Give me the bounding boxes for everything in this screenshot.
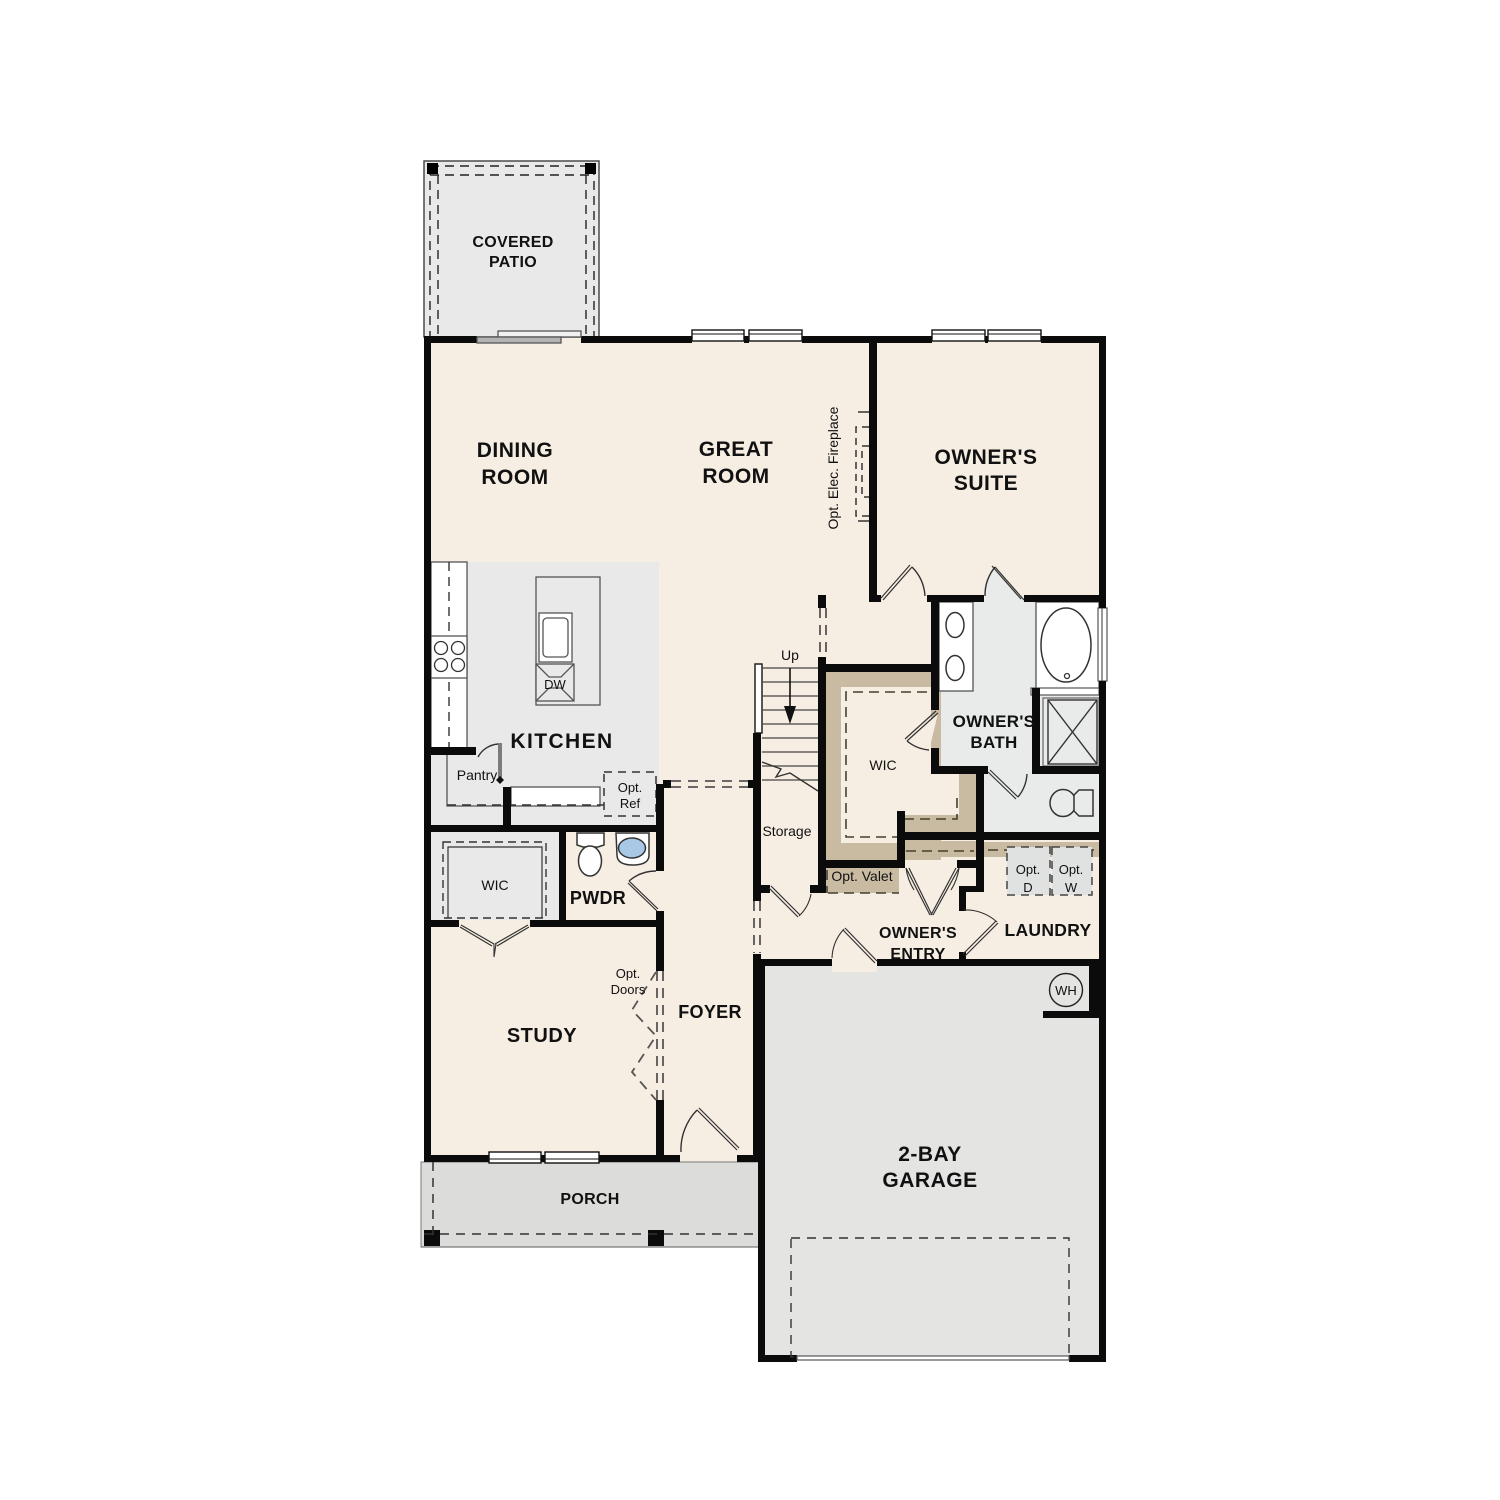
svg-text:ROOM: ROOM [481,466,548,489]
svg-text:PWDR: PWDR [570,888,626,908]
svg-text:LAUNDRY: LAUNDRY [1004,920,1091,940]
svg-text:D: D [1023,880,1032,895]
svg-text:COVERED: COVERED [472,234,553,251]
svg-text:Opt.: Opt. [616,966,641,981]
svg-text:SUITE: SUITE [954,472,1018,495]
svg-text:GARAGE: GARAGE [882,1169,977,1192]
svg-text:Storage: Storage [762,823,811,839]
svg-text:PORCH: PORCH [560,1191,619,1208]
svg-text:WIC: WIC [481,877,508,893]
svg-text:WH: WH [1055,983,1077,998]
svg-text:PATIO: PATIO [489,254,537,271]
svg-text:DINING: DINING [477,439,554,462]
svg-text:WIC: WIC [869,757,896,773]
svg-text:OWNER'S: OWNER'S [935,446,1038,469]
svg-text:ENTRY: ENTRY [890,946,945,963]
svg-text:Ref: Ref [620,796,641,811]
svg-text:BATH: BATH [970,733,1017,752]
svg-text:2-BAY: 2-BAY [898,1143,962,1166]
svg-text:Opt.: Opt. [618,780,643,795]
svg-text:Pantry: Pantry [457,767,497,783]
svg-text:KITCHEN: KITCHEN [510,730,613,753]
svg-text:Opt. Valet: Opt. Valet [831,868,892,884]
svg-text:DW: DW [544,677,566,692]
svg-text:Doors: Doors [611,982,646,997]
svg-text:W: W [1065,880,1078,895]
svg-text:STUDY: STUDY [507,1025,577,1047]
svg-text:FOYER: FOYER [678,1002,742,1022]
svg-text:Opt.: Opt. [1016,862,1041,877]
svg-text:GREAT: GREAT [699,438,773,461]
svg-text:OWNER'S: OWNER'S [953,712,1036,731]
svg-text:ROOM: ROOM [702,465,769,488]
svg-text:Up: Up [781,647,799,663]
svg-text:Opt. Elec. Fireplace: Opt. Elec. Fireplace [825,406,841,529]
svg-text:OWNER'S: OWNER'S [879,925,957,942]
svg-text:Opt.: Opt. [1059,862,1084,877]
